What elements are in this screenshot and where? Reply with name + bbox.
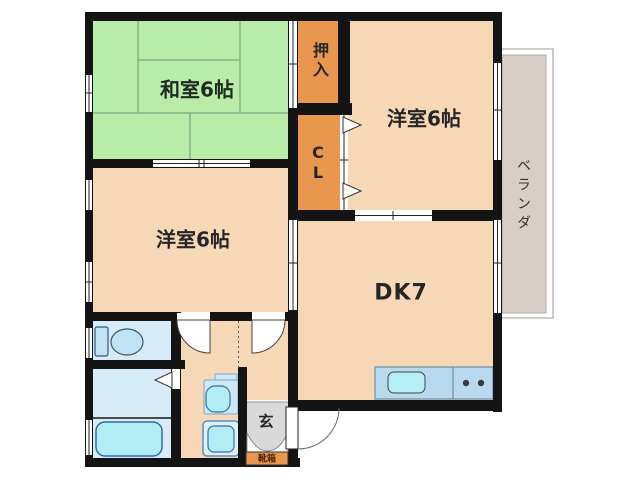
washroom-bathroom-divider <box>93 417 171 419</box>
closet-cl-floor <box>298 115 340 210</box>
wall-dk-top-right <box>432 210 502 221</box>
window <box>494 63 501 160</box>
dk-top-opening <box>355 211 432 220</box>
washbasin-icon <box>204 374 238 414</box>
wall-toilet-washroom <box>85 360 185 369</box>
wall-oshiire-right <box>338 21 350 103</box>
wall-dk-top-left <box>288 210 355 221</box>
bathtub-icon <box>96 422 162 456</box>
entrance-door-leaf <box>286 407 298 449</box>
entrance-door-arc <box>298 408 339 449</box>
yoshitsu-left-floor <box>93 168 288 312</box>
oshiire-sliding-door <box>289 21 297 108</box>
yoshitsu-dk-sliding-door <box>289 220 297 310</box>
window <box>86 180 92 210</box>
hall-door-gap-2 <box>252 313 285 320</box>
washing-machine-icon <box>203 421 239 456</box>
kitchen-counter-icon <box>375 367 493 399</box>
veranda-area <box>497 49 553 318</box>
window <box>86 328 92 358</box>
window <box>86 262 92 302</box>
veranda-deck <box>502 55 546 313</box>
washroom-door-gap <box>172 369 180 389</box>
floorplan-drawing <box>0 0 640 480</box>
wall-dk-bottom <box>288 400 502 411</box>
hall-door-gap-1 <box>177 313 210 320</box>
burner-dot <box>463 380 469 386</box>
wall-yoshitsu-left-bottom-a <box>85 312 177 321</box>
toilet-icon <box>95 327 143 356</box>
oshiire-floor <box>298 21 338 103</box>
shoe-cabinet <box>246 452 288 465</box>
washroom-floor <box>93 369 171 417</box>
yoshitsu-right-floor <box>348 21 493 210</box>
wall-genkan-left <box>238 367 247 458</box>
window <box>86 420 92 455</box>
wall-yoshitsu-left-bottom-c <box>285 312 298 321</box>
window <box>494 220 501 313</box>
window <box>86 75 92 112</box>
burner-dot <box>478 380 484 386</box>
floorplan: 和室6帖 押入 洋室6帖 C L 洋室6帖 DK7 ベランダ 玄 靴箱 <box>0 0 640 480</box>
wall-oshiire-cl-divider <box>298 103 352 115</box>
washitsu-sliding-door <box>153 160 250 167</box>
wall-yoshitsu-left-bottom-b <box>210 312 252 321</box>
